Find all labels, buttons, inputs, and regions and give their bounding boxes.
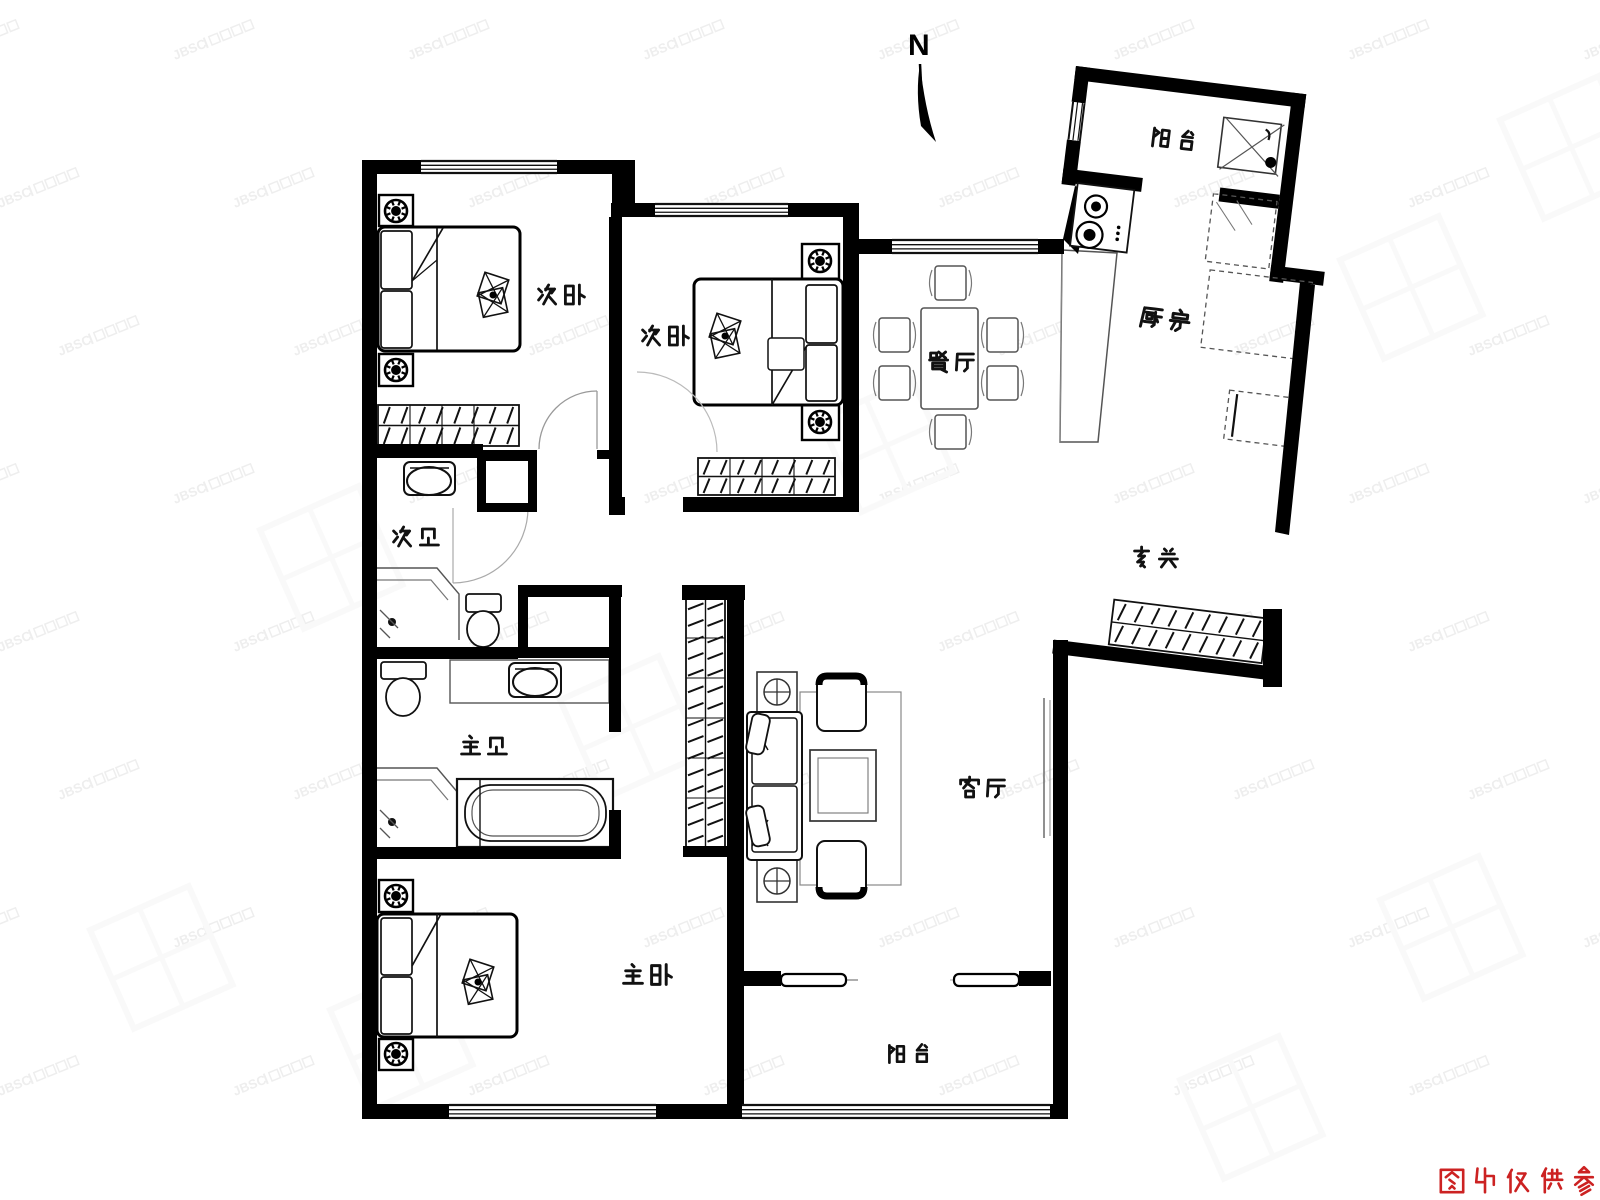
svg-text:N: N (908, 29, 930, 62)
